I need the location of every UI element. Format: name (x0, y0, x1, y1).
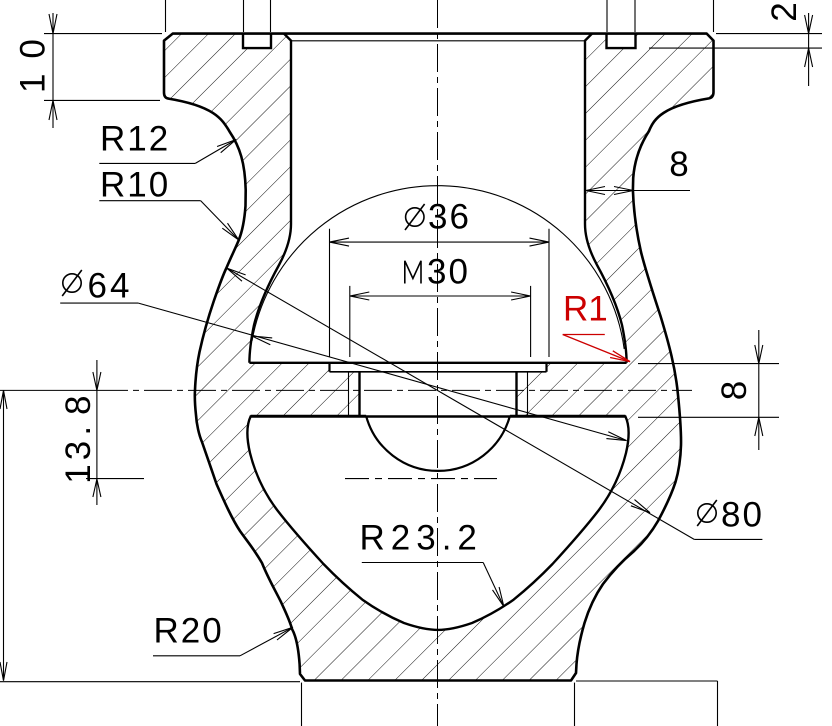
svg-text:R23.2: R23.2 (360, 519, 483, 558)
svg-text:2: 2 (765, 0, 804, 21)
svg-text:1: 1 (59, 464, 98, 483)
svg-text:R10: R10 (100, 166, 170, 205)
svg-text:1: 1 (14, 74, 53, 93)
svg-text:3: 3 (59, 441, 98, 460)
svg-text:30: 30 (427, 253, 470, 292)
svg-text:80: 80 (721, 496, 764, 535)
svg-text:R12: R12 (100, 120, 170, 159)
svg-text:0: 0 (14, 39, 53, 58)
svg-text:36: 36 (428, 198, 471, 237)
svg-text:R20: R20 (154, 612, 224, 651)
svg-text:8: 8 (669, 145, 690, 184)
svg-text:64: 64 (88, 267, 133, 306)
svg-text:.: . (59, 426, 98, 436)
svg-text:8: 8 (715, 379, 754, 400)
svg-text:8: 8 (59, 396, 98, 415)
svg-text:R1: R1 (563, 290, 608, 329)
